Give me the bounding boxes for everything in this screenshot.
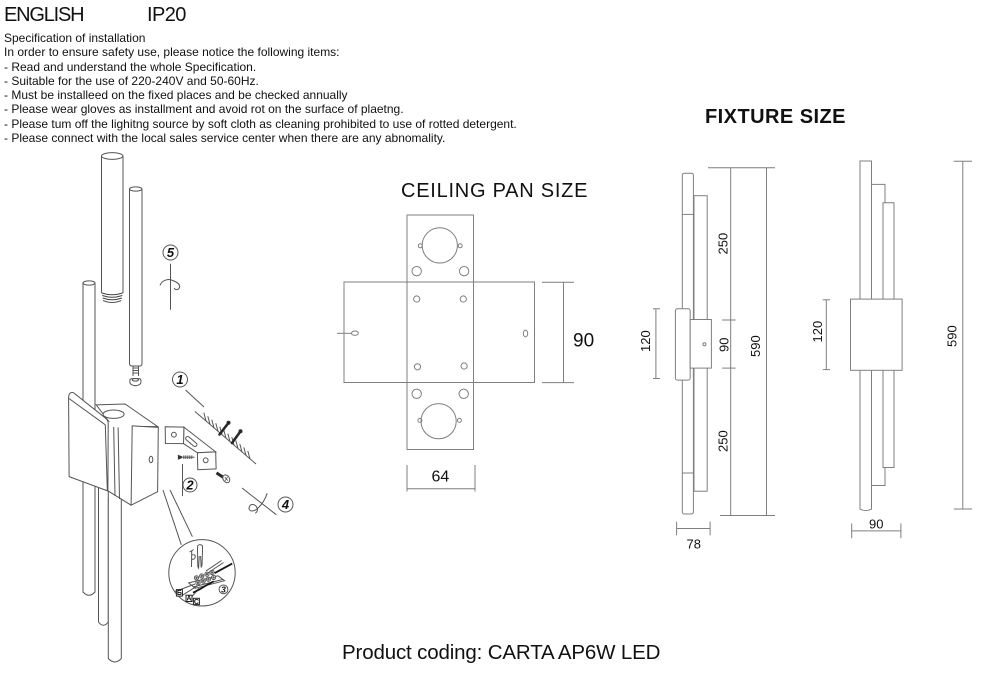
svg-text:5: 5	[167, 245, 175, 260]
svg-text:1: 1	[176, 372, 183, 387]
svg-text:250: 250	[716, 430, 731, 452]
svg-text:2: 2	[185, 478, 194, 493]
svg-text:А: А	[186, 596, 191, 603]
svg-text:590: 590	[748, 335, 763, 357]
svg-text:90: 90	[869, 517, 883, 532]
svg-text:64: 64	[432, 469, 450, 486]
svg-text:4: 4	[281, 497, 290, 512]
svg-text:120: 120	[638, 330, 653, 352]
svg-text:3: 3	[221, 585, 226, 595]
svg-text:120: 120	[810, 321, 825, 343]
svg-text:90: 90	[717, 338, 732, 352]
svg-text:С: С	[194, 599, 199, 606]
svg-text:78: 78	[687, 537, 701, 552]
svg-text:Б: Б	[177, 590, 182, 597]
svg-text:590: 590	[945, 325, 960, 347]
svg-text:90: 90	[573, 331, 594, 352]
svg-text:250: 250	[716, 233, 731, 255]
